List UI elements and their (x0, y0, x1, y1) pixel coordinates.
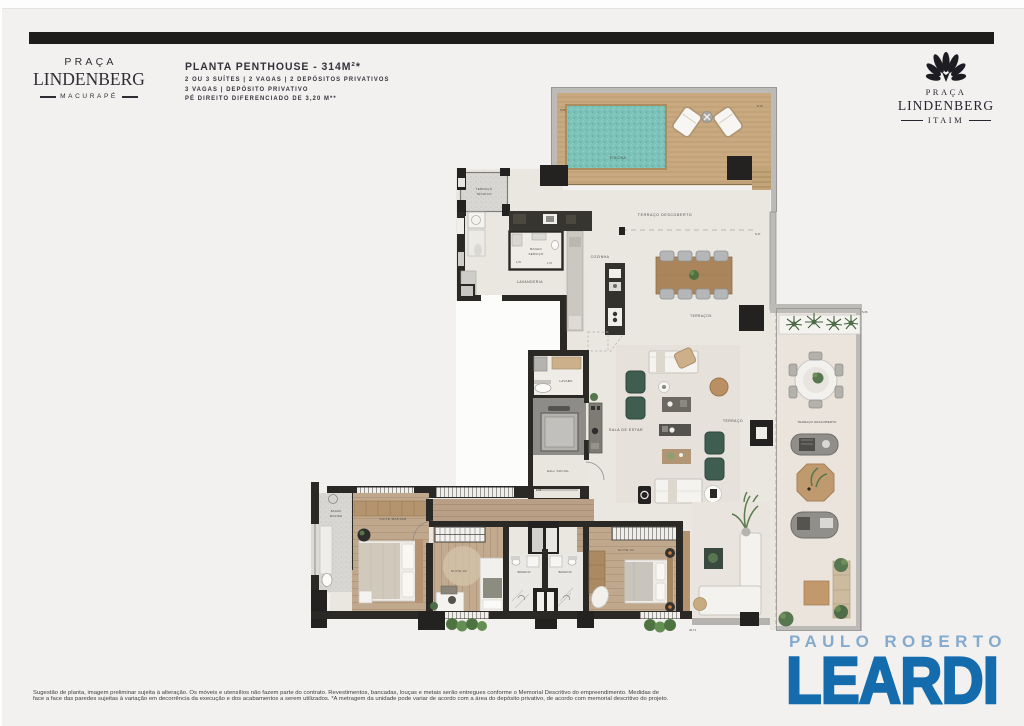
svg-text:BANHO: BANHO (530, 247, 542, 251)
svg-text:SUITE 02: SUITE 02 (451, 569, 467, 573)
svg-text:TERRAÇO DESCOBERTO: TERRAÇO DESCOBERTO (797, 420, 837, 424)
svg-text:BANHO 03: BANHO 03 (559, 570, 572, 574)
svg-text:LAVABO: LAVABO (559, 379, 573, 383)
svg-text:MASTER: MASTER (330, 514, 342, 518)
svg-text:SERVIÇO: SERVIÇO (528, 252, 544, 256)
svg-text:BANHO 02: BANHO 02 (518, 570, 531, 574)
svg-text:SUITE MASTER: SUITE MASTER (380, 517, 407, 521)
svg-text:2,03: 2,03 (536, 488, 542, 492)
svg-text:COZINHA: COZINHA (591, 255, 610, 259)
svg-text:1,70: 1,70 (516, 261, 521, 264)
svg-text:SALA DE ESTAR: SALA DE ESTAR (609, 428, 643, 432)
svg-text:HALL SOCIAL: HALL SOCIAL (547, 469, 570, 473)
svg-text:TERRAÇO DESCOBERTO: TERRAÇO DESCOBERTO (638, 213, 692, 217)
svg-text:TERRAÇOS: TERRAÇOS (690, 314, 712, 318)
svg-text:TÉCNICO: TÉCNICO (476, 191, 492, 196)
svg-text:45,71: 45,71 (689, 628, 696, 632)
svg-text:PISCINA: PISCINA (610, 156, 627, 160)
svg-text:8,70: 8,70 (757, 104, 763, 108)
svg-text:6,17: 6,17 (755, 232, 761, 236)
svg-text:TERRAÇO: TERRAÇO (476, 187, 493, 191)
svg-text:1,72: 1,72 (547, 262, 552, 265)
svg-text:TERRAÇO: TERRAÇO (723, 419, 743, 423)
svg-text:BANHO: BANHO (331, 509, 342, 513)
svg-text:LAVANDERIA: LAVANDERIA (517, 280, 543, 284)
svg-text:5,85: 5,85 (560, 108, 566, 112)
svg-text:5,06: 5,06 (862, 310, 868, 314)
svg-text:SUITE 03: SUITE 03 (618, 548, 634, 552)
